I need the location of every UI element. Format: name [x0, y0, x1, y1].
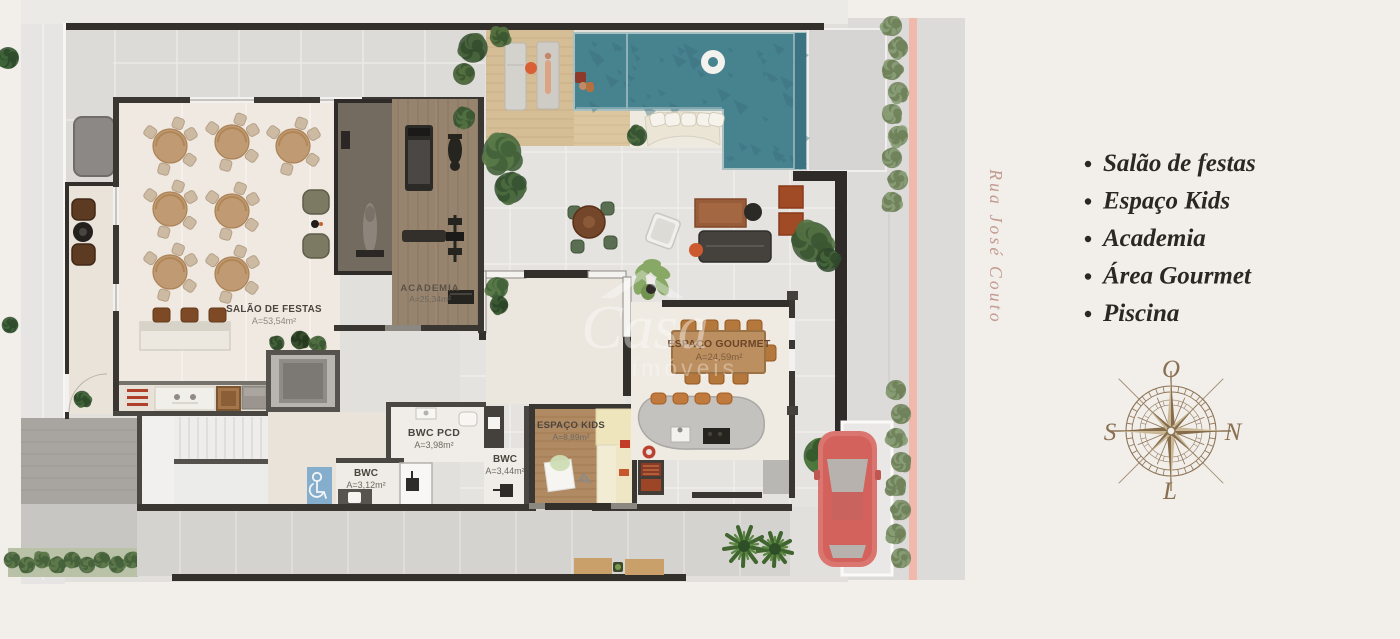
svg-text:A=25,34m²: A=25,34m² [409, 294, 451, 304]
svg-text:BWC: BWC [493, 454, 517, 465]
svg-text:O: O [1162, 356, 1180, 383]
svg-text:Piscina: Piscina [1102, 300, 1179, 327]
svg-text:N: N [1224, 419, 1243, 446]
svg-text:Área Gourmet: Área Gourmet [1101, 262, 1252, 290]
svg-text:A=3,98m²: A=3,98m² [414, 440, 453, 450]
svg-text:Academia: Academia [1101, 225, 1206, 252]
svg-text:A=3,44m²: A=3,44m² [485, 466, 524, 476]
svg-text:BWC PCD: BWC PCD [408, 427, 460, 439]
svg-text:A=53,54m²: A=53,54m² [252, 316, 296, 326]
svg-text:imóveis: imóveis [632, 355, 738, 381]
svg-text:Casa: Casa [581, 294, 708, 362]
svg-text:SALÃO DE FESTAS: SALÃO DE FESTAS [226, 304, 322, 315]
svg-text:Espaço Kids: Espaço Kids [1102, 188, 1230, 215]
svg-text:BWC: BWC [354, 468, 378, 479]
svg-text:A=3,12m²: A=3,12m² [346, 480, 385, 490]
svg-text:ESPAÇO KIDS: ESPAÇO KIDS [537, 420, 605, 431]
svg-text:ACADEMIA: ACADEMIA [400, 283, 459, 294]
svg-text:S: S [1104, 419, 1117, 446]
svg-text:Rua José Couto: Rua José Couto [986, 168, 1006, 325]
svg-text:A=8,89m²: A=8,89m² [552, 432, 589, 442]
svg-text:L: L [1162, 478, 1177, 505]
svg-text:Salão de festas: Salão de festas [1103, 150, 1256, 177]
